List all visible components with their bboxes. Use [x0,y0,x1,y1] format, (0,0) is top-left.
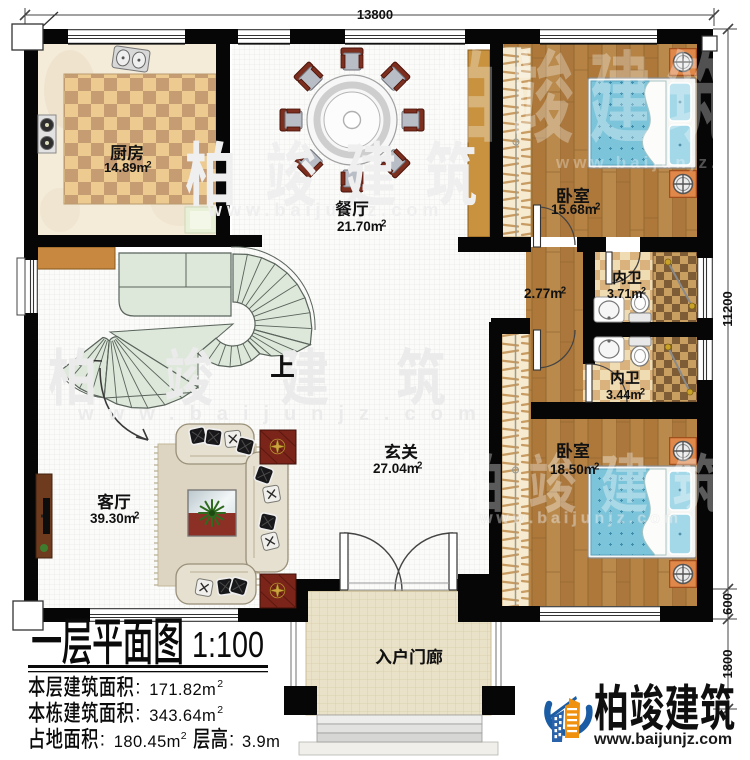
svg-text:343.64m: 343.64m [149,707,216,725]
svg-text:2: 2 [417,460,422,471]
svg-text:2: 2 [641,286,646,296]
svg-text:2: 2 [381,218,386,229]
svg-text::: : [100,730,105,751]
svg-text:2: 2 [146,158,151,169]
svg-text:3.9m: 3.9m [242,733,280,751]
svg-text::: : [135,704,140,725]
svg-text:www.baijunjz.com: www.baijunjz.com [555,153,750,172]
svg-text:1800: 1800 [720,650,735,679]
svg-text:180.45m: 180.45m [114,733,181,751]
svg-text:39.30m: 39.30m [90,511,136,526]
svg-text:www.baijunjz.com: www.baijunjz.com [77,403,491,425]
svg-text:2: 2 [217,704,223,716]
svg-text:2: 2 [134,510,139,521]
svg-text:www.baijunjz.com: www.baijunjz.com [479,510,682,527]
svg-text:18.50m: 18.50m [550,462,596,477]
svg-text:171.82m: 171.82m [149,681,216,699]
svg-text:27.04m: 27.04m [373,461,419,476]
svg-text:1:100: 1:100 [192,624,264,665]
svg-text:600: 600 [720,593,735,615]
svg-text:3.71m: 3.71m [607,287,642,301]
svg-text:21.70m: 21.70m [337,219,383,234]
svg-text::: : [135,678,140,699]
svg-text:15.68m: 15.68m [551,202,597,217]
svg-text:13800: 13800 [357,7,393,22]
svg-text:14.89m: 14.89m [104,160,148,175]
svg-text:www.baijunjz.com: www.baijunjz.com [593,731,732,748]
svg-text:2: 2 [217,678,223,690]
svg-text:2: 2 [561,285,566,296]
svg-text:2: 2 [595,201,600,212]
svg-text:2: 2 [181,730,187,742]
svg-text:www.baijunjz.com: www.baijunjz.com [207,200,443,220]
svg-text:2.77m: 2.77m [524,286,562,301]
svg-text:3.44m: 3.44m [606,388,641,402]
svg-text::: : [229,730,234,751]
svg-text:11200: 11200 [720,291,735,326]
svg-text:2: 2 [640,387,645,397]
svg-text:2: 2 [594,461,599,472]
